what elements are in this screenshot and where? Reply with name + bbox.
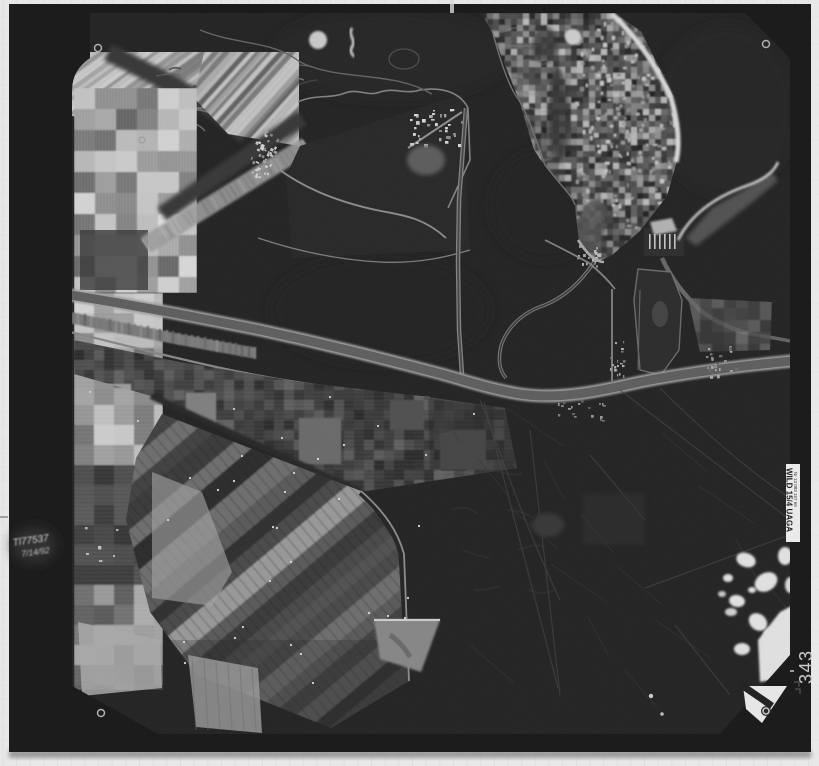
svg-text:343: 343 (796, 649, 816, 684)
svg-text:Nr 13 083 157 66: Nr 13 083 157 66 (793, 472, 798, 507)
svg-text:WILD 15/4 UAGA: WILD 15/4 UAGA (785, 468, 794, 532)
